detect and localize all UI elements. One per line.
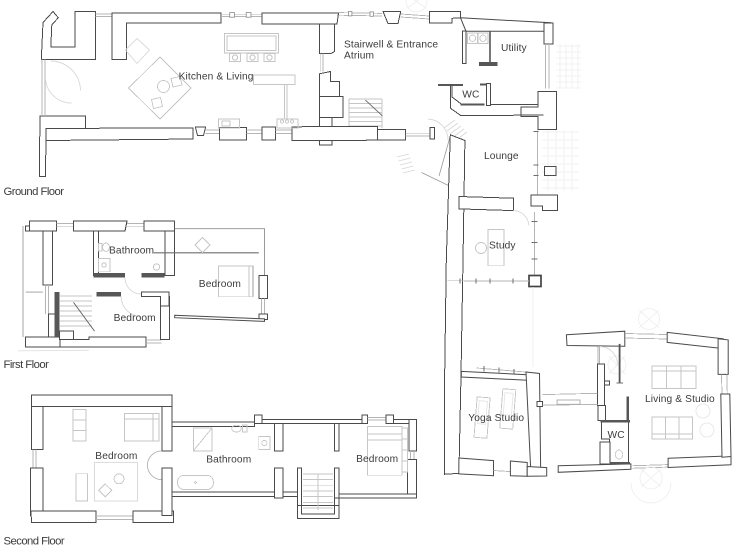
svg-text:Ground Floor: Ground Floor <box>4 186 65 198</box>
svg-text:Lounge: Lounge <box>484 151 519 162</box>
svg-text:Bedroom: Bedroom <box>356 454 398 465</box>
svg-text:Yoga Studio: Yoga Studio <box>468 413 524 424</box>
svg-text:Utility: Utility <box>501 43 528 54</box>
svg-text:Bedroom: Bedroom <box>114 313 156 324</box>
svg-text:Atrium: Atrium <box>344 50 374 61</box>
svg-text:First Floor: First Floor <box>4 359 50 371</box>
svg-text:Bedroom: Bedroom <box>95 451 137 462</box>
svg-text:Stairwell & Entrance: Stairwell & Entrance <box>344 40 438 51</box>
svg-text:Bathroom: Bathroom <box>206 454 251 465</box>
svg-text:Bedroom: Bedroom <box>199 279 241 290</box>
svg-text:Second Floor: Second Floor <box>4 536 65 548</box>
svg-text:Living & Studio: Living & Studio <box>645 394 715 405</box>
svg-text:Kitchen & Living: Kitchen & Living <box>179 71 254 82</box>
svg-text:Study: Study <box>489 240 516 251</box>
svg-text:WC: WC <box>462 90 479 101</box>
svg-text:Bathroom: Bathroom <box>109 246 154 257</box>
svg-text:WC: WC <box>608 430 625 441</box>
